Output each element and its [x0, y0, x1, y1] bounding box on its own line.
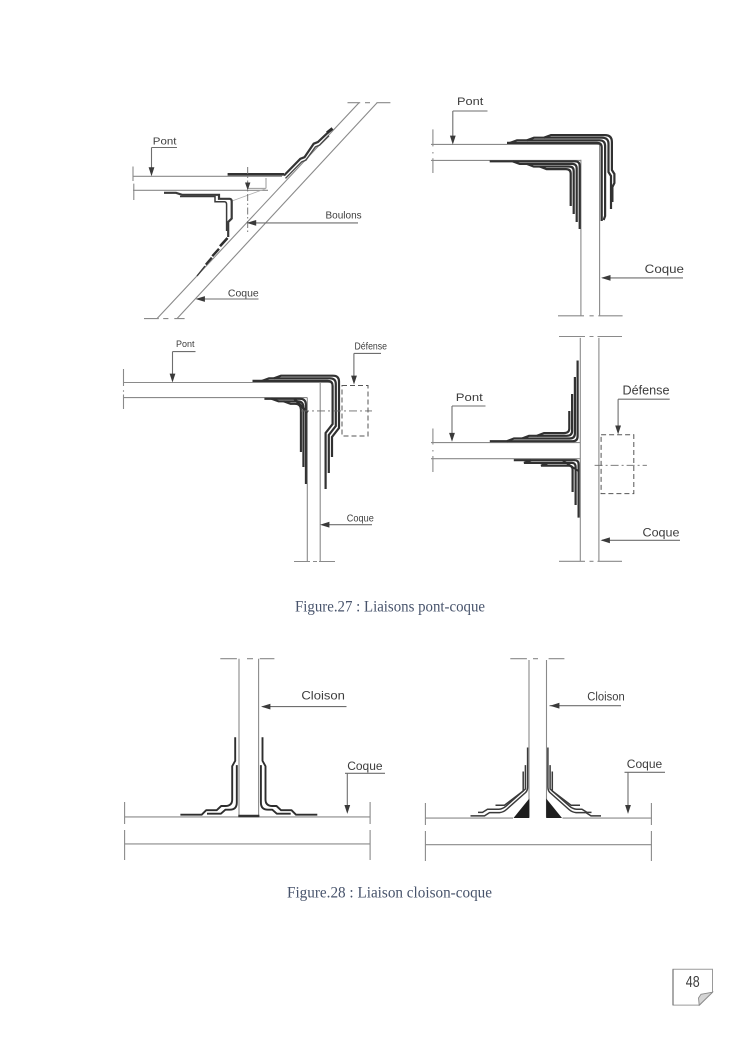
svg-text:Pont: Pont [457, 96, 483, 108]
svg-text:Pont: Pont [456, 392, 483, 404]
svg-text:Coque: Coque [643, 526, 680, 540]
svg-text:Figure.28 : Liaison cloison-co: Figure.28 : Liaison cloison-coque [287, 885, 492, 902]
svg-text:Défense: Défense [623, 384, 670, 398]
svg-text:Cloison: Cloison [301, 689, 345, 703]
svg-text:Coque: Coque [645, 262, 685, 276]
svg-text:Coque: Coque [228, 289, 259, 300]
svg-text:Pont: Pont [153, 137, 177, 148]
svg-text:Cloison: Cloison [587, 692, 624, 704]
svg-text:Pont: Pont [176, 339, 195, 350]
svg-text:Coque: Coque [347, 513, 374, 525]
svg-text:Boulons: Boulons [326, 211, 362, 222]
svg-text:Coque: Coque [627, 757, 663, 771]
svg-text:Défense: Défense [355, 342, 388, 353]
svg-text:48: 48 [686, 974, 700, 991]
svg-text:Figure.27 : Liaisons pont-coqu: Figure.27 : Liaisons pont-coque [295, 598, 485, 615]
svg-text:Coque: Coque [347, 759, 383, 773]
